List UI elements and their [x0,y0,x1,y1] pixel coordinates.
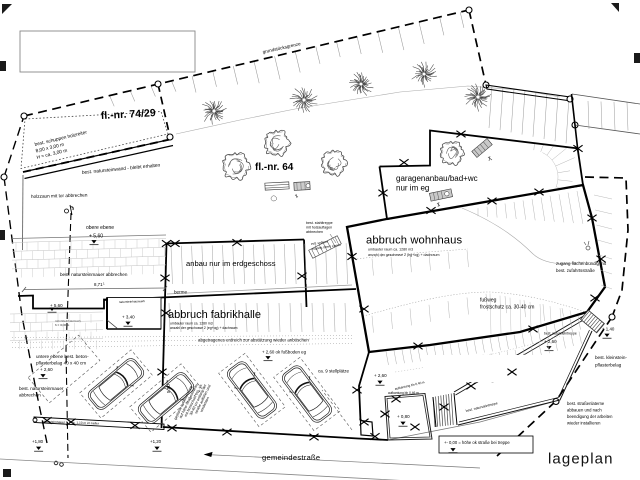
svg-text:fußweg: fußweg [480,298,497,304]
svg-text:+ 3,40: + 3,40 [122,315,135,320]
svg-text:+ 1,40: + 1,40 [602,327,615,332]
svg-text:abbruch fabrikhalle: abbruch fabrikhalle [168,309,261,321]
svg-text:garagenanbau/bad+wc: garagenanbau/bad+wc [396,174,478,183]
svg-text:+ 2,60: + 2,60 [40,367,53,372]
svg-text:+ 5,60: + 5,60 [89,234,103,240]
svg-text:zugang flächenbündig mit: zugang flächenbündig mit [556,261,607,266]
svg-text:abbrechen: abbrechen [306,230,323,234]
svg-text:gemeindestraße: gemeindestraße [262,453,320,462]
svg-text:anbau nur im erdgeschoss: anbau nur im erdgeschoss [186,259,276,268]
svg-text:abgetragenes erdreich zur abst: abgetragenes erdreich zur abstützung wie… [198,338,309,343]
svg-text:best. zufahrtsstraße: best. zufahrtsstraße [556,268,595,273]
svg-text:abbruch wohnhaus: abbruch wohnhaus [366,235,462,247]
svg-text:8,71: 8,71 [94,282,103,287]
svg-text:+- 0,00 = höhe ok straße bei t: +- 0,00 = höhe ok straße bei treppe [444,440,510,445]
svg-text:pflasterbelag 40 x 40 cm: pflasterbelag 40 x 40 cm [36,361,86,366]
svg-text:umbauter raum ca. 1280 m3: umbauter raum ca. 1280 m3 [170,322,213,326]
svg-text:berme: berme [174,290,187,295]
svg-text:best. kleinstein-: best. kleinstein- [595,355,627,360]
svg-text:pflasterbelag: pflasterbelag [595,363,622,368]
svg-text:+ 0,80: + 0,80 [397,414,410,419]
svg-text:fl.-nr. 64: fl.-nr. 64 [255,162,294,173]
svg-text:wieder installieren: wieder installieren [567,421,601,426]
svg-text:best. natursteintreppe: best. natursteintreppe [544,332,577,336]
svg-text:ca. 9 stellplätze: ca. 9 stellplätze [318,369,350,374]
svg-text:nur im eg: nur im eg [396,184,429,193]
svg-text:mit holzauflagen: mit holzauflagen [306,226,332,230]
svg-text:beendigung der arbeiten: beendigung der arbeiten [567,414,613,419]
svg-text:untere ebene best. beton-: untere ebene best. beton- [36,354,89,359]
svg-text:abbrechen: abbrechen [19,393,41,398]
svg-text:+ 5,60: + 5,60 [50,303,63,308]
svg-text:+ 2,60 ok fußboden eg: + 2,60 ok fußboden eg [262,350,307,355]
svg-text:best. stahltreppe: best. stahltreppe [306,221,333,225]
svg-text:+1,20: +1,20 [150,439,162,444]
svg-text:anzahl der geschosse 2 (eg+og): anzahl der geschosse 2 (eg+og) + dachrau… [368,253,440,257]
svg-text:umbauter raum ca. 1280 m3: umbauter raum ca. 1280 m3 [368,248,413,252]
svg-text:abbauen und nach: abbauen und nach [567,408,602,413]
svg-text:best. natursteinmauer: best. natursteinmauer [19,386,64,391]
svg-text:anzahl der geschosse 2 (eg+og): anzahl der geschosse 2 (eg+og) + dachrau… [170,326,238,330]
svg-text:obere ebene: obere ebene [86,225,114,231]
svg-text:best. natursteinmauer abbreche: best. natursteinmauer abbrechen [60,272,128,277]
svg-text:best. straßenlaterne: best. straßenlaterne [567,401,605,406]
svg-text:5,50: 5,50 [166,384,171,393]
svg-text:aufkantung bh 0,46 m: aufkantung bh 0,46 m [388,391,419,395]
svg-text:h = 3,00 m: h = 3,00 m [55,323,70,327]
svg-text:+ 2,60: + 2,60 [374,373,387,378]
svg-text:lageplan: lageplan [548,451,614,468]
svg-text:frostschutz ca. 30-40 cm: frostschutz ca. 30-40 cm [480,305,534,311]
svg-text:+1,80: +1,80 [32,439,44,444]
